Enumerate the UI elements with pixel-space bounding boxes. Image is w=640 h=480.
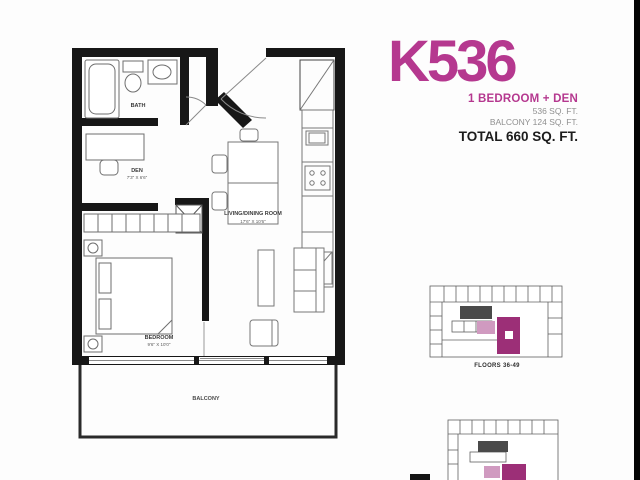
living-dining-label: LIVING/DINING ROOM: [224, 211, 282, 217]
keyplan-upper: [430, 286, 562, 357]
window-band: [84, 357, 332, 364]
unit-code: K536: [388, 34, 578, 89]
unit-type: 1 BEDROOM + DEN: [388, 93, 578, 105]
bedroom-dims: 9'6" X 10'0": [148, 342, 171, 347]
floorplan-sheet: BATH DEN 7'3" X 6'6" LIVING/DINING ROOM …: [0, 0, 640, 480]
total-area: TOTAL 660 SQ. FT.: [388, 129, 578, 144]
door-swings: [186, 58, 266, 125]
bath-label: BATH: [131, 103, 146, 109]
right-edge-bar: [634, 0, 640, 480]
cutoff-artifact: [410, 474, 430, 480]
living-dining-dims: 17'6" X 10'6": [240, 219, 265, 224]
balcony-label: BALCONY: [192, 396, 219, 402]
interior-area: 536 SQ. FT.: [388, 106, 578, 116]
living-furniture: [250, 248, 324, 346]
title-block: K536 1 BEDROOM + DEN 536 SQ. FT. BALCONY…: [388, 34, 578, 144]
bedroom-label: BEDROOM: [145, 335, 174, 341]
keyplan-caption: FLOORS 36-49: [474, 363, 520, 369]
keyplan-lower: [448, 420, 558, 480]
den-label: DEN: [131, 168, 143, 174]
dining-table: [212, 129, 278, 224]
balcony-area: BALCONY 124 SQ. FT.: [388, 117, 578, 127]
den-dims: 7'3" X 6'6": [127, 175, 147, 180]
